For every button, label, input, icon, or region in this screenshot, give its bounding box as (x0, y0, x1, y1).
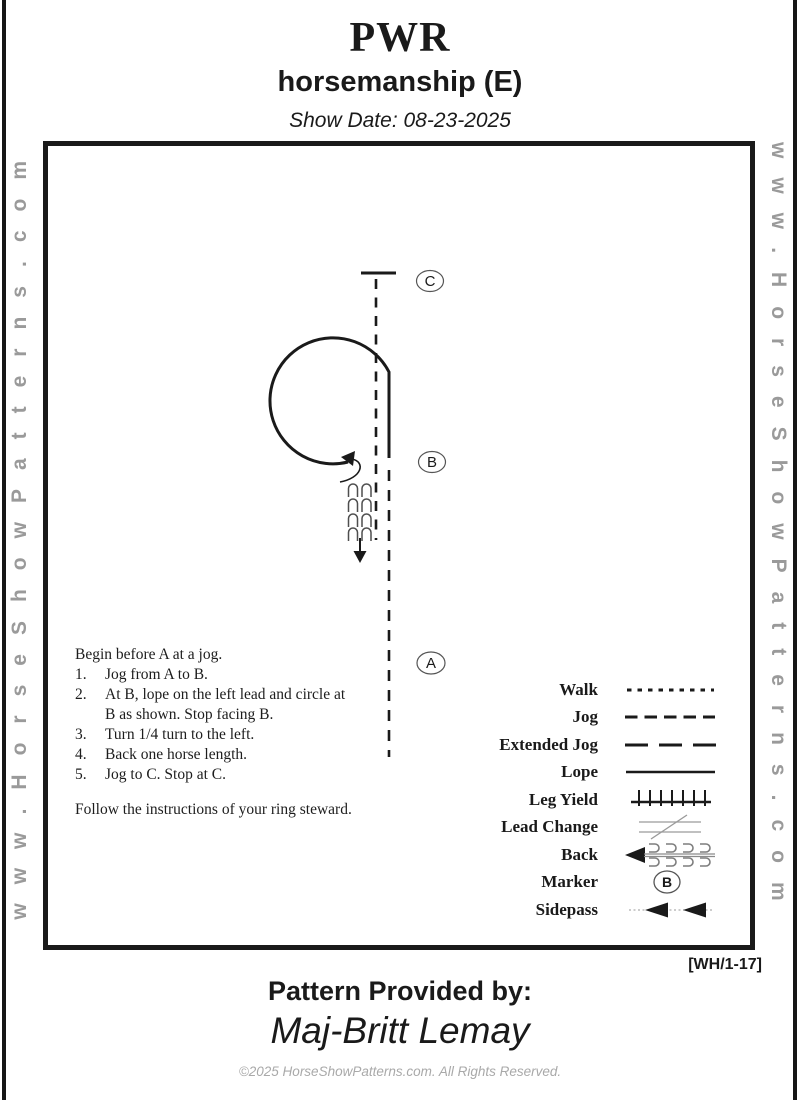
leg-yield-icon (623, 787, 718, 813)
step-text-line: At B, lope on the left lead and circle a… (105, 685, 345, 705)
step-number: 2. (75, 685, 105, 725)
provided-by-label: Pattern Provided by: (0, 976, 800, 1007)
marker-c: C (417, 271, 444, 292)
legend: Walk Jog Extended Jog Lope Leg Yield (480, 676, 720, 924)
legend-label: Lead Change (480, 817, 598, 837)
legend-row-walk: Walk (480, 676, 720, 704)
provided-by-name: Maj-Britt Lemay (0, 1010, 800, 1052)
legend-label: Leg Yield (480, 790, 598, 810)
legend-label: Sidepass (480, 900, 598, 920)
walk-line-icon (623, 677, 718, 703)
back-arrowhead (354, 551, 367, 563)
instruction-step: 2. At B, lope on the left lead and circl… (75, 685, 445, 725)
copyright-notice: ©2025 HorseShowPatterns.com. All Rights … (0, 1064, 800, 1079)
instruction-step: 4. Back one horse length. (75, 745, 445, 765)
watermark-right: www.HorseShowPatterns.com (766, 142, 790, 920)
step-text: At B, lope on the left lead and circle a… (105, 685, 345, 725)
marker-b: B (419, 452, 446, 473)
page-border-right (793, 0, 797, 1100)
marker-b-label: B (427, 454, 437, 471)
instructions: Begin before A at a jog. 1. Jog from A t… (75, 645, 445, 820)
legend-label: Back (480, 845, 598, 865)
lope-circle (270, 338, 389, 464)
pattern-code: [WH/1-17] (0, 956, 762, 974)
step-text: Jog to C. Stop at C. (105, 765, 226, 785)
legend-row-lope: Lope (480, 759, 720, 787)
step-text: Back one horse length. (105, 745, 247, 765)
legend-label: Jog (480, 707, 598, 727)
sidepass-icon (623, 897, 718, 923)
show-date: Show Date: 08-23-2025 (0, 109, 800, 133)
legend-row-lead-change: Lead Change (480, 814, 720, 842)
step-text: Turn 1/4 turn to the left. (105, 725, 254, 745)
instructions-intro: Begin before A at a jog. (75, 645, 445, 665)
legend-row-extended-jog: Extended Jog (480, 731, 720, 759)
lope-line-icon (623, 759, 718, 785)
legend-row-jog: Jog (480, 704, 720, 732)
marker-icon-letter: B (662, 874, 672, 890)
back-symbol (349, 484, 372, 541)
legend-row-back: Back (480, 841, 720, 869)
legend-row-leg-yield: Leg Yield (480, 786, 720, 814)
marker-icon: B (623, 869, 718, 895)
class-subtitle: horsemanship (E) (0, 66, 800, 99)
page-border-left (2, 0, 6, 1100)
marker-c-label: C (425, 273, 436, 290)
steward-note: Follow the instructions of your ring ste… (75, 800, 445, 820)
legend-label: Extended Jog (480, 735, 598, 755)
instruction-step: 1. Jog from A to B. (75, 665, 445, 685)
step-number: 1. (75, 665, 105, 685)
legend-row-sidepass: Sidepass (480, 896, 720, 924)
step-number: 5. (75, 765, 105, 785)
watermark-left: www.HorseShowPatterns.com (8, 142, 32, 920)
step-text: Jog from A to B. (105, 665, 208, 685)
legend-label: Marker (480, 872, 598, 892)
step-text-line: B as shown. Stop facing B. (105, 705, 345, 725)
step-number: 3. (75, 725, 105, 745)
extended-jog-line-icon (623, 732, 718, 758)
lead-change-icon (623, 814, 718, 840)
legend-row-marker: Marker B (480, 869, 720, 897)
step-number: 4. (75, 745, 105, 765)
instruction-step: 3. Turn 1/4 turn to the left. (75, 725, 445, 745)
legend-label: Lope (480, 762, 598, 782)
legend-label: Walk (480, 680, 598, 700)
jog-line-icon (623, 704, 718, 730)
back-icon (623, 842, 718, 868)
page-title: PWR (0, 14, 800, 62)
instruction-step: 5. Jog to C. Stop at C. (75, 765, 445, 785)
